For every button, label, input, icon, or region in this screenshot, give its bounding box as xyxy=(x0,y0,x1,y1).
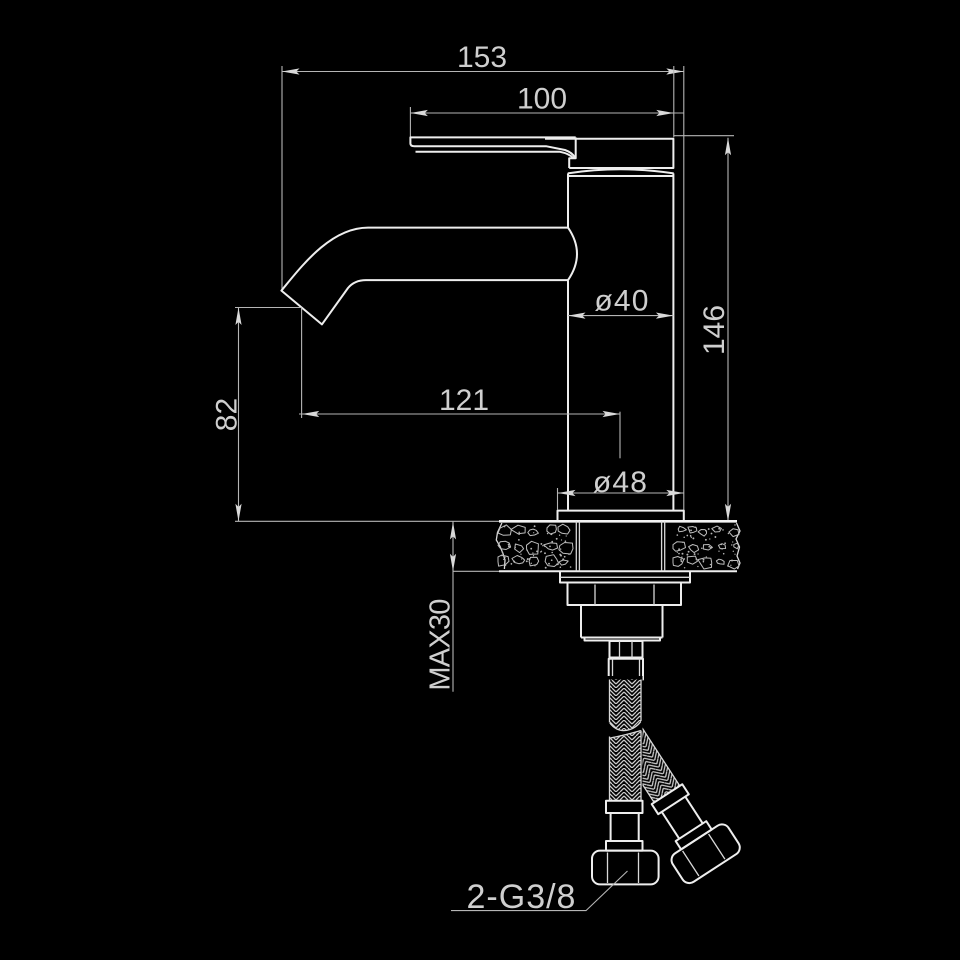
svg-text:ø40: ø40 xyxy=(594,285,649,318)
svg-text:121: 121 xyxy=(439,384,489,417)
svg-text:MAX30: MAX30 xyxy=(425,599,457,690)
svg-text:ø48: ø48 xyxy=(593,466,648,499)
svg-text:100: 100 xyxy=(517,83,567,116)
svg-text:82: 82 xyxy=(211,398,244,431)
svg-text:146: 146 xyxy=(698,305,731,355)
svg-text:153: 153 xyxy=(457,41,507,74)
